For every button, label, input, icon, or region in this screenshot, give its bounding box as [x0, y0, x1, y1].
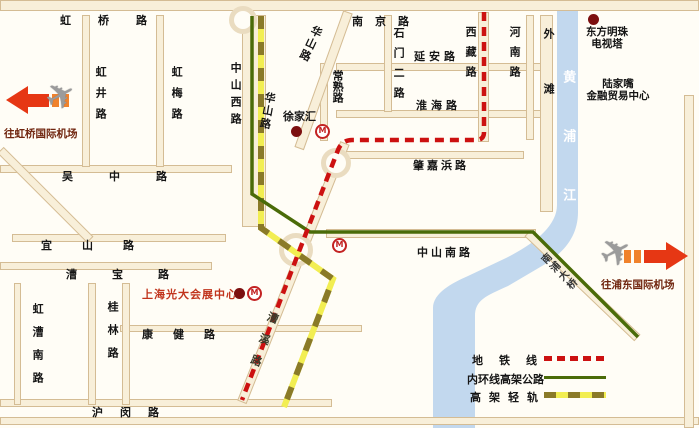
- right-arrow-icon: [666, 242, 688, 270]
- oriental-pearl-line1: 东方明珠: [578, 27, 636, 39]
- road-label-zhongshan-xi: 中山西路: [229, 62, 241, 130]
- road-label-shimen-er: 石门二路: [392, 27, 404, 107]
- road-label-wuzhong: 吴中路: [62, 171, 203, 183]
- lujiazui-line2: 金融贸易中心: [580, 91, 656, 103]
- legend-innerring-sample: [544, 376, 606, 379]
- road-label-humin: 沪闵路: [92, 407, 176, 419]
- legend-metro-label: 地铁线: [472, 352, 553, 368]
- left-arrow-icon: [6, 86, 28, 114]
- road-label-zhaojiabang: 肇嘉浜路: [413, 160, 469, 172]
- oriental-pearl-dot: [588, 14, 599, 25]
- river-label: 黄浦江: [560, 70, 574, 247]
- legend-lightrail-sample: [544, 392, 606, 398]
- light-rail-line-dashes: [261, 16, 333, 407]
- road-label-yishan: 宜山路: [41, 240, 164, 252]
- pudong-airport-label: 往浦东国际机场: [601, 280, 675, 292]
- hongqiao-airport-label: 往虹桥国际机场: [4, 129, 78, 141]
- everbright-dot: [234, 288, 245, 299]
- road-label-waitan: 外滩: [542, 28, 554, 138]
- everbright-metro-icon: M: [247, 286, 262, 301]
- metro-line: [242, 12, 484, 400]
- inner-ring-elevated-road-line: [252, 16, 638, 337]
- xujiahui-dot: [291, 126, 302, 137]
- airplane-icon: ✈: [38, 71, 84, 121]
- xujiahui-metro-icon: M: [315, 124, 330, 139]
- road-label-zhongshan-nan: 中山南路: [417, 247, 473, 259]
- road-label-nanjing: 南京路: [352, 16, 421, 28]
- road-label-xizang: 西藏路: [464, 26, 476, 86]
- road-label-henan: 河南路: [508, 26, 520, 86]
- road-label-yanan: 延安路: [414, 51, 459, 63]
- arrow-stripe: [634, 250, 641, 263]
- road-label-kangjian: 康健路: [142, 329, 235, 341]
- road-label-guilin: 桂林路: [106, 301, 118, 370]
- road-label-hongjing: 虹井路: [94, 66, 106, 129]
- landmark-everbright-label: 上海光大会展中心: [142, 289, 238, 301]
- road-label-changshu: 常熟路: [331, 70, 343, 103]
- transit-lines: [0, 0, 699, 428]
- landmark-lujiazui: 陆家嘴 金融贸易中心: [580, 79, 656, 102]
- junction-metro-icon: M: [332, 238, 347, 253]
- road-label-caobao: 漕宝路: [66, 269, 204, 281]
- airplane-icon: ✈: [592, 225, 641, 279]
- legend-metro-sample: [544, 356, 606, 361]
- right-arrow-shaft: [644, 250, 666, 263]
- shanghai-traffic-map: 虹桥路 南京路 延安路 淮海路 吴中路 肇嘉浜路 宜山路 中山南路 漕宝路 康健…: [0, 0, 699, 428]
- landmark-oriental-pearl: 东方明珠 电视塔: [578, 27, 636, 50]
- legend-innerring-label: 内环线高架公路: [467, 371, 544, 387]
- legend-lightrail-label: 高架轻轨: [470, 389, 546, 405]
- road-label-huaihai: 淮海路: [416, 100, 461, 112]
- light-rail-line-base: [261, 16, 333, 407]
- lujiazui-line1: 陆家嘴: [580, 79, 656, 91]
- oriental-pearl-line2: 电视塔: [578, 39, 636, 51]
- hongqiao-airport-icon: ✈: [6, 74, 90, 128]
- road-label-hongmei: 虹梅路: [170, 66, 182, 129]
- road-label-hongcao-nan: 虹漕南路: [31, 303, 43, 395]
- road-label-hongqiao: 虹桥路: [60, 15, 174, 27]
- pudong-airport-icon: ✈: [598, 224, 690, 282]
- landmark-xujiahui-label: 徐家汇: [283, 111, 316, 123]
- arrow-stripe: [624, 250, 631, 263]
